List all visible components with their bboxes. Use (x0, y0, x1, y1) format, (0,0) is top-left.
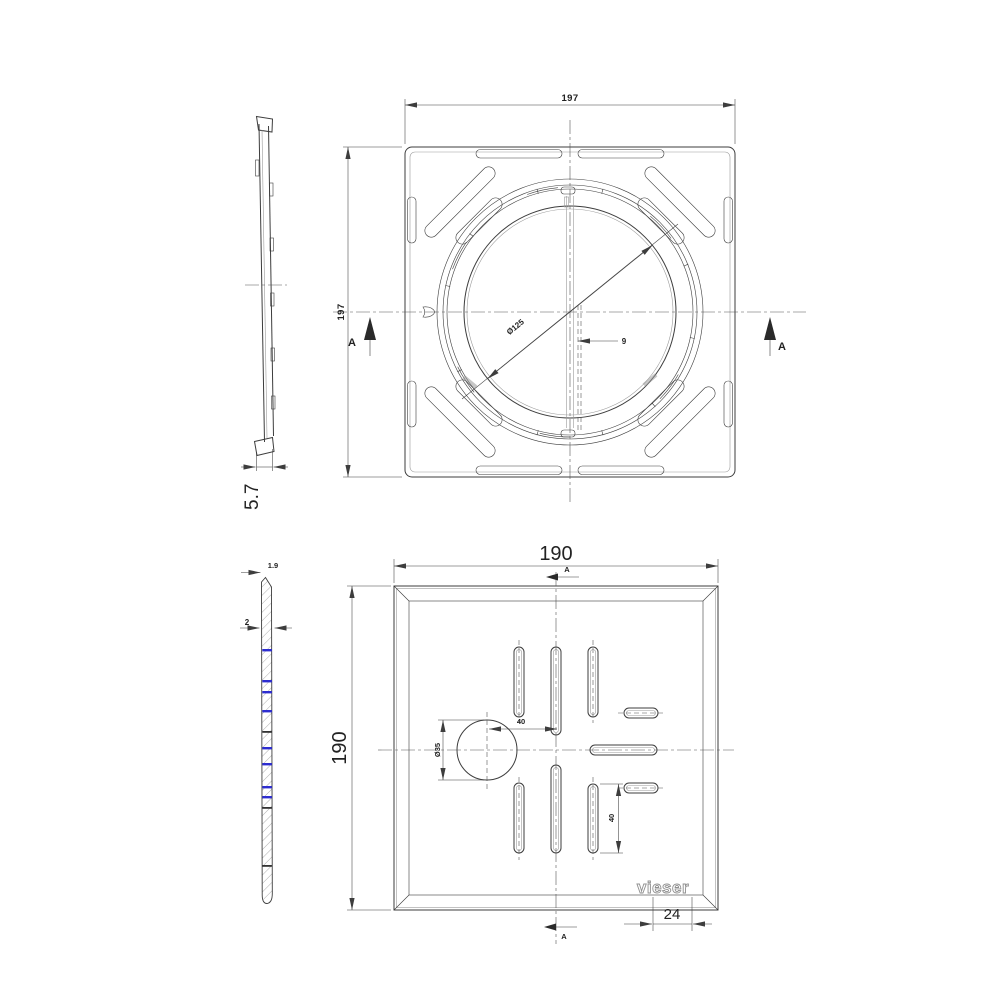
section-bar (262, 578, 273, 904)
section-label-left: A (348, 337, 356, 349)
technical-drawing: 5.7 (0, 0, 1000, 1000)
hole-diameter-label: Ø35 (433, 743, 442, 757)
drawing-sheet: 5.7 (0, 0, 1000, 1000)
section-marker-bottom: A (544, 924, 577, 942)
tip-thickness-label: 1.9 (268, 561, 278, 570)
section-label-bottom: A (561, 932, 567, 941)
logo-margin-label: 24 (664, 906, 681, 923)
side-profile-view: 5.7 (241, 117, 288, 511)
dim-tip-thickness: 1.9 (241, 561, 278, 573)
bottom-width-label: 190 (539, 543, 572, 565)
top-height-label: 197 (336, 303, 347, 320)
dim-bottom-height: 190 (329, 586, 391, 910)
dim-slot-length: 40 (600, 784, 623, 853)
section-arrow-right: A (764, 317, 786, 356)
top-plan-view: Ø125 9 197 197 A A (333, 93, 806, 505)
bottom-height-label: 190 (329, 731, 351, 764)
dim-top-width: 197 (405, 93, 735, 144)
section-label-top: A (564, 565, 570, 574)
dim-opening-diameter: Ø125 (462, 224, 678, 399)
top-width-label: 197 (561, 93, 578, 104)
dim-profile-thickness: 5.7 (241, 449, 288, 510)
bottom-plan-view: 190 190 40 Ø35 40 (329, 543, 734, 944)
hole-offset-label: 40 (517, 717, 525, 726)
material-thickness-label: 2 (245, 618, 250, 627)
vieser-logo: vieser (637, 878, 689, 897)
molded-text-mark (643, 373, 658, 386)
slot-length-label: 40 (607, 814, 616, 822)
dim-center-offset: 9 (578, 337, 627, 346)
center-offset-label: 9 (622, 337, 627, 346)
section-label-right: A (778, 341, 786, 353)
section-arrow-left: A (348, 317, 376, 356)
section-view: 1.9 2 (240, 561, 292, 904)
opening-diameter-label: Ø125 (505, 317, 526, 337)
profile-thickness-label: 5.7 (242, 484, 263, 510)
section-marker-top: A (546, 565, 579, 581)
dim-logo-margin: 24 (624, 897, 712, 931)
